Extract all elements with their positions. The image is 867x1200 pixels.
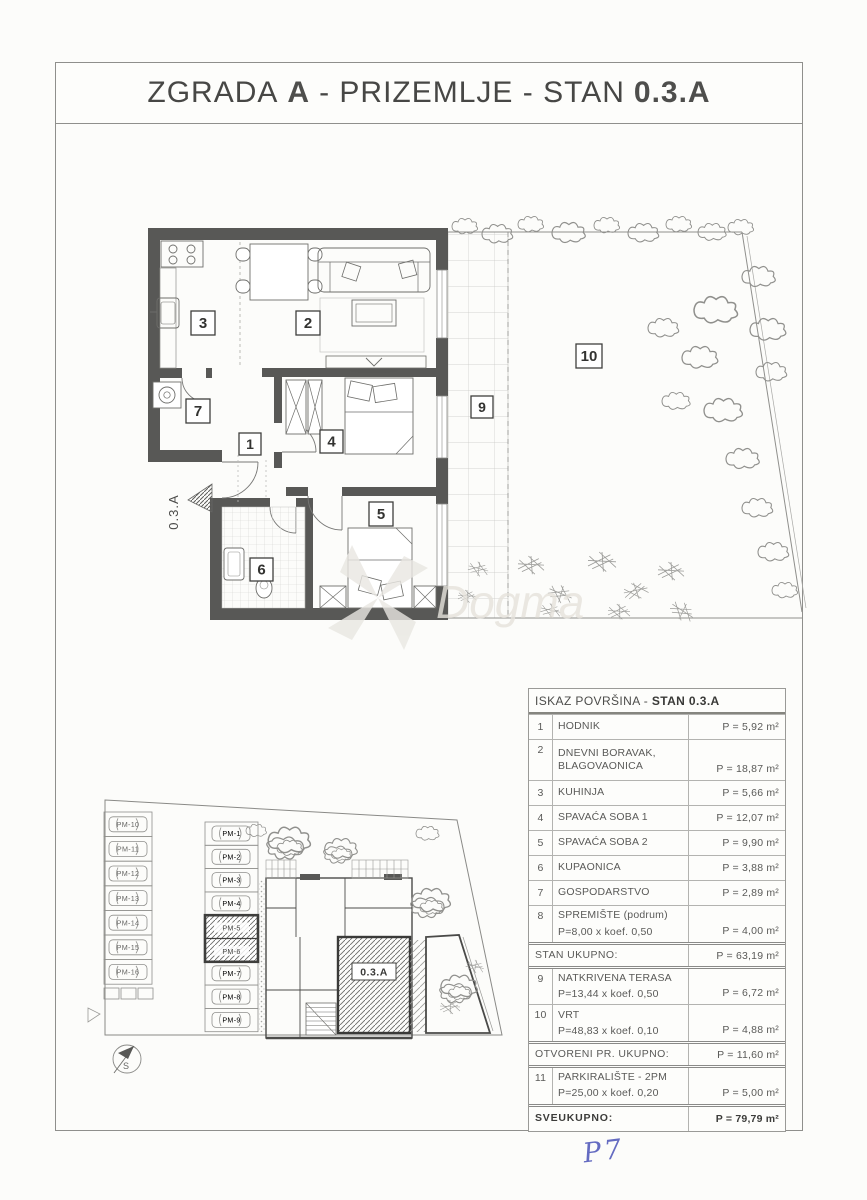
room-label-1: 1 xyxy=(239,433,261,455)
row-value: P = 4,88 m² xyxy=(689,1005,785,1041)
table-row: 8 SPREMIŠTE (podrum) P=8,00 x koef. 0,50… xyxy=(529,905,785,942)
row-number: 6 xyxy=(529,856,553,880)
row-name: NATKRIVENA TERASA xyxy=(558,972,683,985)
room-label-10: 10 xyxy=(576,344,602,368)
row-name: GOSPODARSTVO xyxy=(558,886,683,899)
subtotal-value: P = 11,60 m² xyxy=(689,1044,785,1065)
row-name: VRT xyxy=(558,1009,683,1022)
row-name: DNEVNI BORAVAK, BLAGOVAONICA xyxy=(558,747,683,773)
planting-strip xyxy=(259,880,266,1032)
row-formula: P=25,00 x koef. 0,20 xyxy=(558,1087,683,1100)
table-header-unit: STAN 0.3.A xyxy=(652,694,720,708)
room-number: 4 xyxy=(327,434,336,451)
parking-spot-label: PM-10 xyxy=(117,820,140,829)
parking-spot-label: PM-4 xyxy=(222,899,240,908)
parking-spot-label: PM-1 xyxy=(222,829,240,838)
parking-spot-label: PM-2 xyxy=(222,852,240,861)
area-table: ISKAZ POVRŠINA - STAN 0.3.A 1 HODNIK P =… xyxy=(528,688,786,1132)
row-value: P = 9,90 m² xyxy=(689,831,785,855)
stairwell xyxy=(306,1003,336,1035)
room-number: 7 xyxy=(194,403,202,420)
room-label-4: 4 xyxy=(320,430,343,453)
row-value: P = 6,72 m² xyxy=(689,969,785,1004)
room-number: 6 xyxy=(257,562,265,579)
subtotal-value: P = 63,19 m² xyxy=(689,945,785,966)
area-table-header: ISKAZ POVRŠINA - STAN 0.3.A xyxy=(529,689,785,714)
row-number: 2 xyxy=(529,740,553,780)
parking-spot-label: PM-11 xyxy=(117,845,139,854)
table-row: 10 VRT P=48,83 x koef. 0,10 P = 4,88 m² xyxy=(529,1004,785,1041)
driveway-arrow-icon xyxy=(88,1008,100,1022)
row-name: KUHINJA xyxy=(558,786,683,799)
grandtotal-label: SVEUKUPNO: xyxy=(529,1107,689,1131)
room-label-5: 5 xyxy=(369,502,393,526)
floor-plan: 1 2 3 4 5 6 7 9 10 xyxy=(148,216,806,624)
row-name: SPAVAĆA SOBA 1 xyxy=(558,811,683,824)
north-label: S xyxy=(123,1061,129,1071)
parking-spot-label: PM-15 xyxy=(117,943,140,952)
parking-spot-label: PM-9 xyxy=(222,1016,240,1025)
subtotal-label: STAN UKUPNO: xyxy=(529,945,689,966)
room-label-6: 6 xyxy=(250,558,273,581)
parking-spot-label-highlighted: PM-5 xyxy=(222,924,240,933)
north-arrow: S xyxy=(113,1045,141,1073)
entrance-label: 0.3.A xyxy=(166,484,212,530)
handwritten-note: P7 xyxy=(581,1134,626,1170)
row-number: 3 xyxy=(529,781,553,805)
parking-spot-label: PM-16 xyxy=(117,968,140,977)
subtotal-row-stan: STAN UKUPNO: P = 63,19 m² xyxy=(529,942,785,966)
site-unit-highlight: 0.3.A xyxy=(338,935,493,1033)
row-formula: P=8,00 x koef. 0,50 xyxy=(558,926,683,939)
row-number: 1 xyxy=(529,715,553,739)
row-value: P = 4,00 m² xyxy=(689,906,785,942)
row-number: 5 xyxy=(529,831,553,855)
room-label-2: 2 xyxy=(296,311,320,335)
row-value: P = 3,88 m² xyxy=(689,856,785,880)
room-number: 10 xyxy=(581,348,598,365)
row-value: P = 5,00 m² xyxy=(689,1068,785,1103)
table-row: 11 PARKIRALIŠTE - 2PM P=25,00 x koef. 0,… xyxy=(529,1065,785,1103)
windows xyxy=(437,270,447,586)
row-value: P = 18,87 m² xyxy=(689,740,785,780)
row-name: KUPAONICA xyxy=(558,861,683,874)
utility-fixtures xyxy=(153,382,181,408)
row-number: 9 xyxy=(529,969,553,1004)
room-label-7: 7 xyxy=(186,399,210,423)
subtotal-row-otvoreni: OTVORENI PR. UKUPNO: P = 11,60 m² xyxy=(529,1041,785,1065)
row-number: 10 xyxy=(529,1005,553,1041)
grandtotal-row: SVEUKUPNO: P = 79,79 m² xyxy=(529,1104,785,1131)
grandtotal-value: P = 79,79 m² xyxy=(689,1107,785,1131)
row-number: 7 xyxy=(529,881,553,905)
parking-spot-label: PM-3 xyxy=(222,876,240,885)
pergola-grids xyxy=(266,860,408,878)
parking-spot-label: PM-14 xyxy=(117,918,140,927)
bedroom1-furniture xyxy=(286,378,413,454)
room-number: 9 xyxy=(478,399,486,415)
terrace xyxy=(448,232,508,618)
dining-set xyxy=(236,244,322,300)
parking-spot-label: PM-12 xyxy=(117,869,140,878)
row-value: P = 5,66 m² xyxy=(689,781,785,805)
table-row: 7 GOSPODARSTVO P = 2,89 m² xyxy=(529,880,785,905)
parking-spot-label: PM-7 xyxy=(222,969,240,978)
table-row: 2 DNEVNI BORAVAK, BLAGOVAONICA P = 18,87… xyxy=(529,739,785,780)
table-row: 5 SPAVAĆA SOBA 2 P = 9,90 m² xyxy=(529,830,785,855)
room-label-3: 3 xyxy=(191,311,215,335)
entrance-unit-label: 0.3.A xyxy=(166,494,181,529)
table-row: 3 KUHINJA P = 5,66 m² xyxy=(529,780,785,805)
room-number: 2 xyxy=(304,315,312,332)
table-header-prefix: ISKAZ POVRŠINA - xyxy=(535,694,652,708)
row-value: P = 2,89 m² xyxy=(689,881,785,905)
row-formula: P=48,83 x koef. 0,10 xyxy=(558,1025,683,1038)
table-row: 1 HODNIK P = 5,92 m² xyxy=(529,714,785,739)
row-name: HODNIK xyxy=(558,720,683,733)
table-row: 6 KUPAONICA P = 3,88 m² xyxy=(529,855,785,880)
room-number: 5 xyxy=(377,506,385,523)
site-unit-label: 0.3.A xyxy=(360,967,388,979)
watermark-text: Dogma xyxy=(436,576,584,628)
parking-labels-right: PM-1 PM-2 PM-3 PM-4 PM-5 PM-6 PM-7 PM-8 … xyxy=(222,829,240,1025)
parking-spot-label: PM-13 xyxy=(117,894,140,903)
row-name: SPREMIŠTE (podrum) xyxy=(558,909,683,922)
row-name: SPAVAĆA SOBA 2 xyxy=(558,836,683,849)
scanned-floorplan-page: ZGRADA A - PRIZEMLJE - STAN 0.3.A xyxy=(0,0,867,1200)
parking-spot-label-highlighted: PM-6 xyxy=(222,947,240,956)
table-row: 4 SPAVAĆA SOBA 1 P = 12,07 m² xyxy=(529,805,785,830)
parcel-boundary xyxy=(105,800,502,1035)
subtotal-label: OTVORENI PR. UKUPNO: xyxy=(529,1044,689,1065)
row-number: 11 xyxy=(529,1068,553,1103)
room-label-9: 9 xyxy=(471,396,493,418)
row-value: P = 5,92 m² xyxy=(689,715,785,739)
row-name: PARKIRALIŠTE - 2PM xyxy=(558,1071,683,1084)
row-formula: P=13,44 x koef. 0,50 xyxy=(558,988,683,1001)
entrance-arrow-icon xyxy=(188,484,212,512)
room-number: 1 xyxy=(246,436,254,452)
row-number: 8 xyxy=(529,906,553,942)
living-furniture xyxy=(318,248,430,373)
row-value: P = 12,07 m² xyxy=(689,806,785,830)
table-row: 9 NATKRIVENA TERASA P=13,44 x koef. 0,50… xyxy=(529,966,785,1004)
room-number: 3 xyxy=(199,315,207,332)
parking-spot-label: PM-8 xyxy=(222,992,240,1001)
row-number: 4 xyxy=(529,806,553,830)
site-plan: PM-10 PM-11 PM-12 PM-13 PM-14 PM-15 PM-1… xyxy=(88,800,502,1073)
